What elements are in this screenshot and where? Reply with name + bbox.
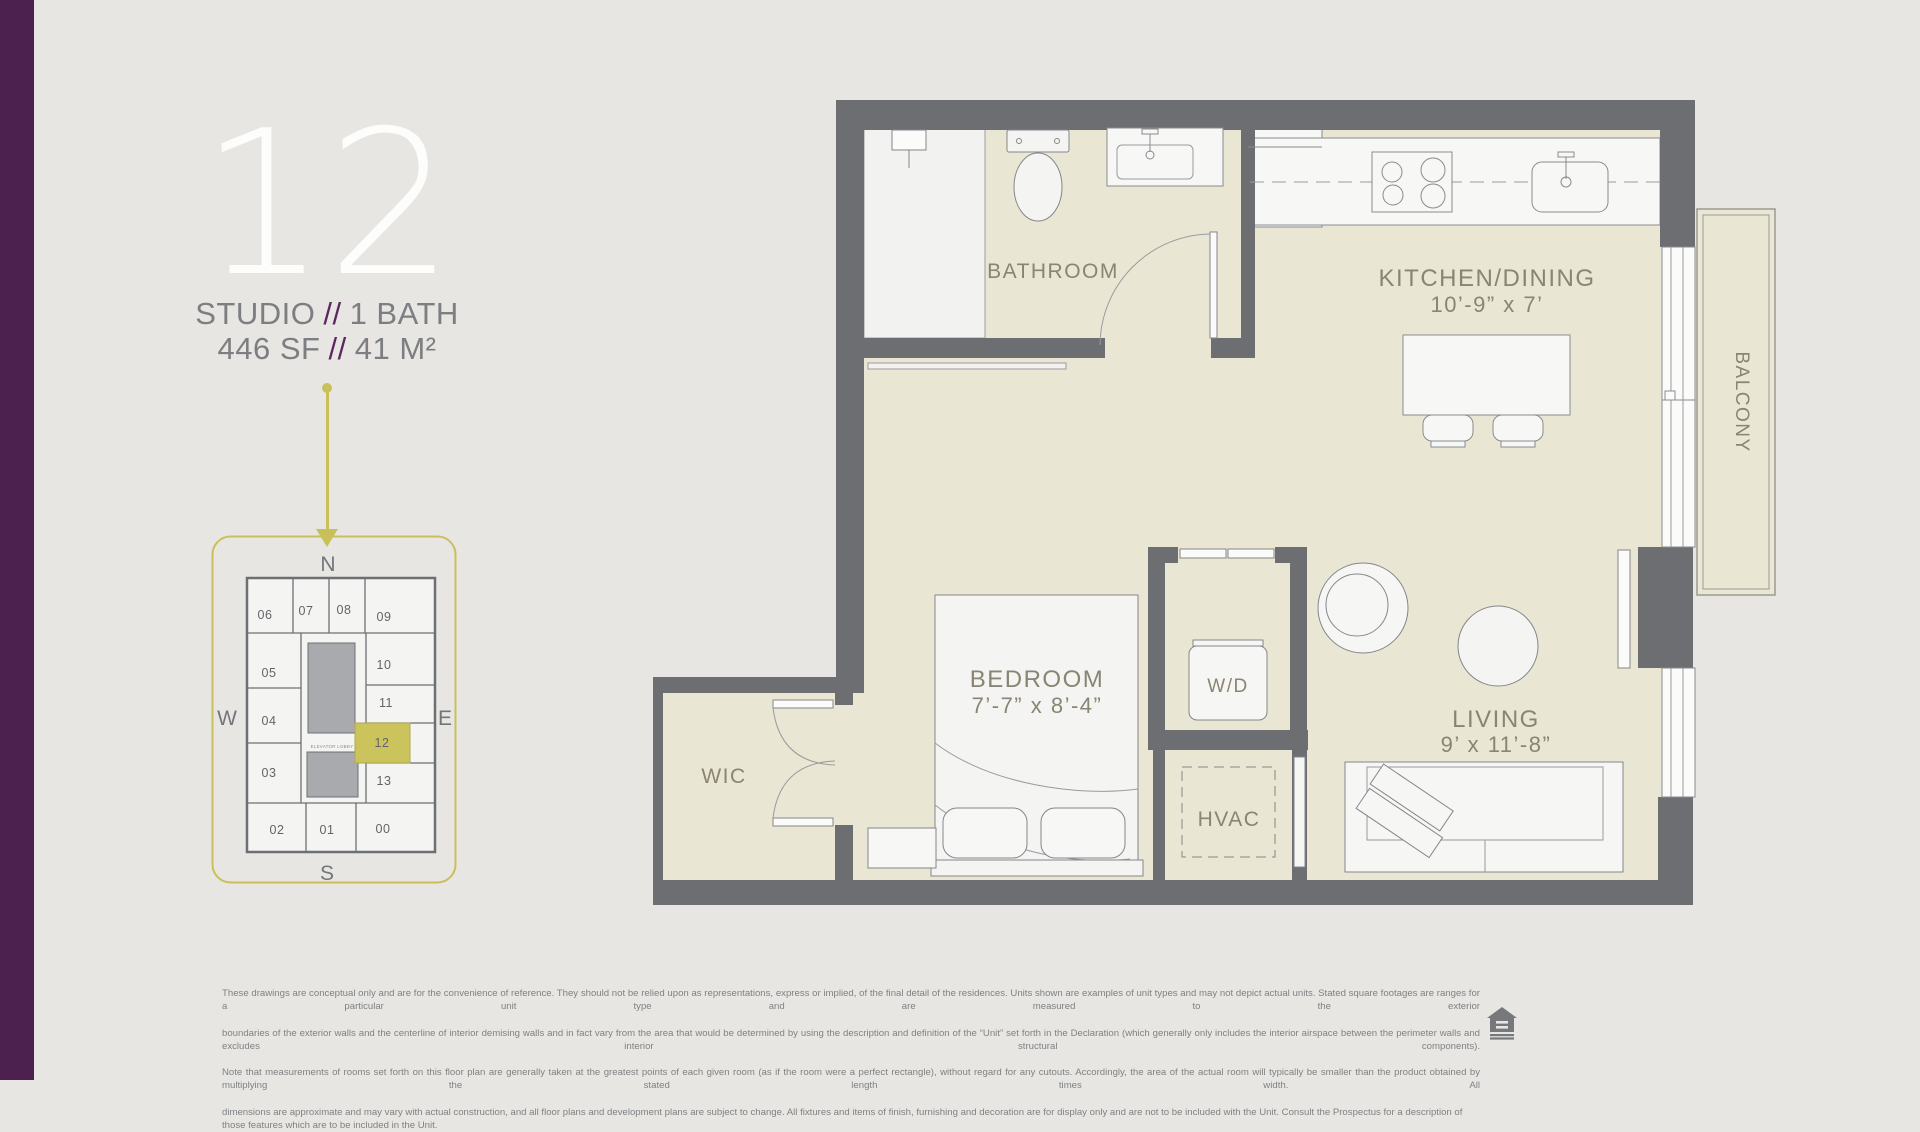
- keyplan-unit-13: 13: [377, 774, 392, 788]
- toilet-bowl: [1014, 153, 1062, 221]
- room-label-bedroom: BEDROOM: [970, 666, 1105, 693]
- hvac-door: [1294, 757, 1305, 867]
- headboard: [931, 860, 1143, 876]
- legal-disclaimer: These drawings are conceptual only and a…: [222, 987, 1480, 1132]
- pillow: [943, 808, 1027, 858]
- closet-door: [1180, 549, 1226, 558]
- building-key-plan: N S W E ELEVATOR LOBBY 06 07 08 09 05 10…: [211, 535, 457, 884]
- room-dim-kitchen: 10’-9” x 7’: [1430, 292, 1543, 317]
- keyplan-unit-08: 08: [337, 603, 352, 617]
- disclaimer-line: Note that measurements of rooms set fort…: [222, 1066, 1480, 1106]
- slider-handle: [1665, 391, 1675, 400]
- unit-floor-plan: BATHROOM KITCHEN/DINING 10’-9” x 7’ BEDR…: [640, 95, 1790, 910]
- unit-meta: STUDIO//1 BATH 446 SF//41 M²: [139, 296, 515, 366]
- equal-housing-opportunity-icon: [1486, 1006, 1518, 1042]
- shower: [864, 128, 985, 338]
- separator-slashes: //: [315, 296, 349, 331]
- stool: [1423, 415, 1473, 441]
- compass-west: W: [217, 707, 237, 730]
- elevator-shaft: [308, 643, 355, 733]
- balcony-windows: [1662, 247, 1695, 797]
- keyplan-unit-06: 06: [258, 608, 273, 622]
- room-label-kitchen: KITCHEN/DINING: [1378, 265, 1595, 292]
- disclaimer-line: dimensions are approximate and may vary …: [222, 1106, 1480, 1132]
- round-table: [1458, 606, 1538, 686]
- unit-type-label: STUDIO: [195, 296, 315, 331]
- cooktop: [1372, 152, 1452, 212]
- room-label-wic: WIC: [701, 765, 746, 788]
- stool: [1493, 415, 1543, 441]
- keyplan-unit-04: 04: [262, 714, 277, 728]
- shower-head-icon: [892, 130, 926, 150]
- separator-slashes: //: [320, 331, 354, 366]
- elevator-lobby-label: ELEVATOR LOBBY: [311, 744, 354, 749]
- tv-console: [1618, 550, 1630, 668]
- keyplan-unit-12: 12: [375, 736, 390, 750]
- pillow: [1041, 808, 1125, 858]
- bathroom-door: [1210, 232, 1217, 338]
- kitchen-sink: [1532, 162, 1608, 212]
- entry-closet-shelf: [868, 363, 1066, 369]
- closet-door: [1228, 549, 1274, 558]
- unit-area-line: 446 SF//41 M²: [139, 331, 515, 366]
- nightstand: [868, 828, 936, 868]
- connector-line: [326, 392, 329, 530]
- unit-area-m2: 41 M²: [355, 331, 437, 366]
- keyplan-unit-09: 09: [377, 610, 392, 624]
- unit-number: 12: [179, 130, 475, 280]
- keyplan-unit-01: 01: [320, 823, 335, 837]
- disclaimer-line: These drawings are conceptual only and a…: [222, 987, 1480, 1027]
- keyplan-unit-02: 02: [270, 823, 285, 837]
- keyplan-unit-11: 11: [379, 696, 393, 710]
- disclaimer-line: boundaries of the exterior walls and the…: [222, 1027, 1480, 1067]
- room-label-bathroom: BATHROOM: [987, 260, 1119, 283]
- room-dim-living: 9’ x 11’-8”: [1441, 732, 1552, 757]
- kitchen-island: [1403, 335, 1570, 415]
- accent-sidebar: [0, 0, 34, 1080]
- keyplan-unit-03: 03: [262, 766, 277, 780]
- compass-north: N: [320, 553, 335, 576]
- elevator-shaft: [307, 752, 358, 797]
- unit-type-line: STUDIO//1 BATH: [139, 296, 515, 331]
- room-label-balcony: BALCONY: [1731, 351, 1752, 452]
- room-label-hvac: HVAC: [1198, 808, 1261, 831]
- room-dim-bedroom: 7’-7” x 8’-4”: [972, 693, 1103, 718]
- keyplan-unit-07: 07: [299, 604, 314, 618]
- keyplan-unit-10: 10: [377, 658, 392, 672]
- compass-south: S: [320, 862, 334, 884]
- keyplan-unit-05: 05: [262, 666, 277, 680]
- unit-bath-label: 1 BATH: [350, 296, 459, 331]
- compass-east: E: [438, 707, 452, 730]
- vanity: [1107, 128, 1223, 186]
- unit-area-sf: 446 SF: [218, 331, 321, 366]
- keyplan-unit-00: 00: [376, 822, 391, 836]
- room-label-living: LIVING: [1452, 706, 1540, 733]
- room-label-wd: W/D: [1207, 676, 1248, 697]
